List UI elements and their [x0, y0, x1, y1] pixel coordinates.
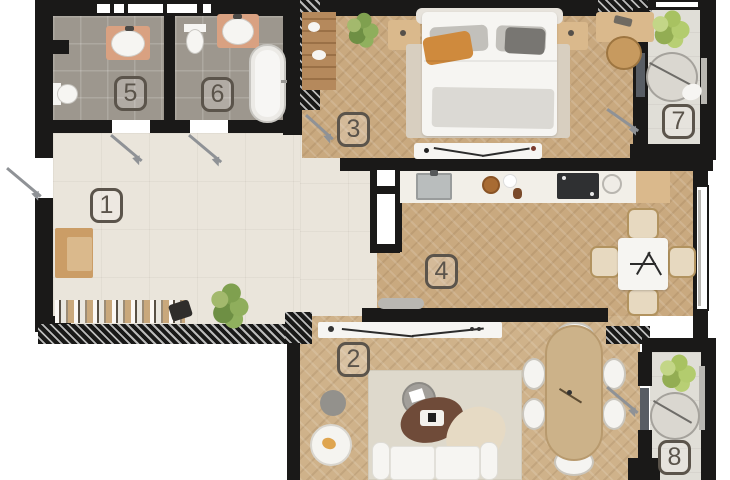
centerpiece-dot [567, 390, 572, 395]
toilet [186, 29, 204, 54]
entrance-door-swing [6, 167, 42, 198]
faucet [125, 26, 134, 31]
room-label-1: 1 [90, 188, 123, 223]
kitchen-bench [378, 298, 424, 309]
window-mullion [197, 2, 203, 15]
room-label-4: 4 [425, 254, 458, 289]
plant [654, 354, 700, 394]
toilet [57, 84, 78, 104]
bench-decor-dot [531, 146, 536, 151]
bathtub-faucet [281, 80, 287, 83]
dining-chair [602, 358, 626, 390]
sofa-armrest [480, 442, 498, 480]
window-balcony7-sill [701, 58, 707, 104]
sofa-seat [435, 446, 480, 480]
remote [428, 413, 436, 422]
bench-decor-dot [424, 148, 429, 153]
wall-left-upper [35, 0, 53, 158]
balcony8-door-glass [640, 388, 649, 430]
shelf-dish [308, 22, 320, 32]
jar [513, 188, 522, 199]
floor-plan: 1 2 3 4 5 6 7 8 [0, 0, 730, 480]
shelf-dish [312, 50, 326, 60]
counter-wood-section [636, 171, 670, 203]
dining-chair [627, 288, 659, 316]
hall-bench-seat [67, 237, 92, 271]
wall-hatch-hall-step [285, 312, 312, 344]
wall-bath-bottom [150, 120, 190, 133]
sink-basin [222, 18, 254, 45]
room-number: 2 [347, 347, 361, 372]
wall-living-left [287, 343, 300, 480]
wall-bath-divider [164, 16, 175, 120]
sofa-armrest [372, 442, 390, 480]
window-partition-pane [375, 168, 397, 188]
cooktop-dot [562, 176, 566, 180]
wall-balcony8-left [638, 352, 652, 386]
kitchen-faucet [430, 170, 438, 176]
plant [342, 12, 382, 50]
window-mullion [163, 2, 167, 15]
plant [646, 10, 694, 50]
nightstand-item [400, 30, 406, 36]
plate [503, 174, 517, 188]
wall-bath-bottom [53, 120, 112, 133]
tv-console-dot [470, 327, 474, 331]
bread [482, 176, 500, 194]
wall-pilaster [53, 40, 69, 54]
bathtub [249, 44, 286, 123]
wall-balcony7-bottom [630, 144, 716, 160]
dining-chair [627, 208, 659, 240]
room-number: 1 [100, 193, 114, 218]
bed-bench [414, 143, 542, 159]
sink-basin [111, 30, 145, 57]
sofa-seat [390, 446, 435, 480]
tv-console-dot [477, 327, 481, 331]
cooktop-dot [590, 192, 594, 196]
coat-rack [55, 300, 185, 323]
wall-left-lower [35, 198, 53, 332]
pot [602, 174, 622, 194]
room-label-2: 2 [337, 342, 370, 377]
wall-bottom-right-block [628, 458, 660, 480]
desk-chair [606, 36, 642, 70]
faucet [233, 14, 242, 19]
pouf [320, 390, 346, 416]
kitchen-sink [416, 173, 452, 200]
window-balcony7 [654, 0, 700, 9]
dining-chair [668, 246, 696, 278]
room-number: 4 [435, 259, 449, 284]
room-label-7: 7 [662, 104, 695, 139]
bed-throw [432, 87, 555, 129]
nightstand-item [568, 30, 574, 36]
room-label-5: 5 [114, 76, 147, 111]
window-kitchen-sill [698, 190, 701, 306]
window-mullion [110, 2, 114, 15]
room-label-3: 3 [337, 112, 370, 147]
dining-chair [590, 246, 620, 278]
blanket-fold [424, 60, 557, 62]
dining-chair [522, 358, 546, 390]
room-number: 6 [211, 82, 225, 107]
pillow-dark [504, 27, 545, 55]
wall-kitchen-bottom [362, 308, 608, 322]
wall-partition-post [370, 244, 400, 253]
room-number: 5 [124, 81, 138, 106]
room-number: 7 [672, 109, 686, 134]
room-number: 3 [347, 117, 361, 142]
room-label-6: 6 [201, 77, 234, 112]
room-number: 8 [668, 445, 682, 470]
tv-console-dot [328, 326, 334, 332]
dining-chair [522, 398, 546, 430]
plant [206, 282, 252, 332]
window-partition-pane [375, 192, 397, 248]
window-mullion [124, 2, 128, 15]
room-label-8: 8 [658, 440, 691, 475]
wall-hatch-hall-bottom [38, 324, 312, 344]
balcony-table [650, 392, 700, 440]
dining-table-large [545, 325, 603, 461]
